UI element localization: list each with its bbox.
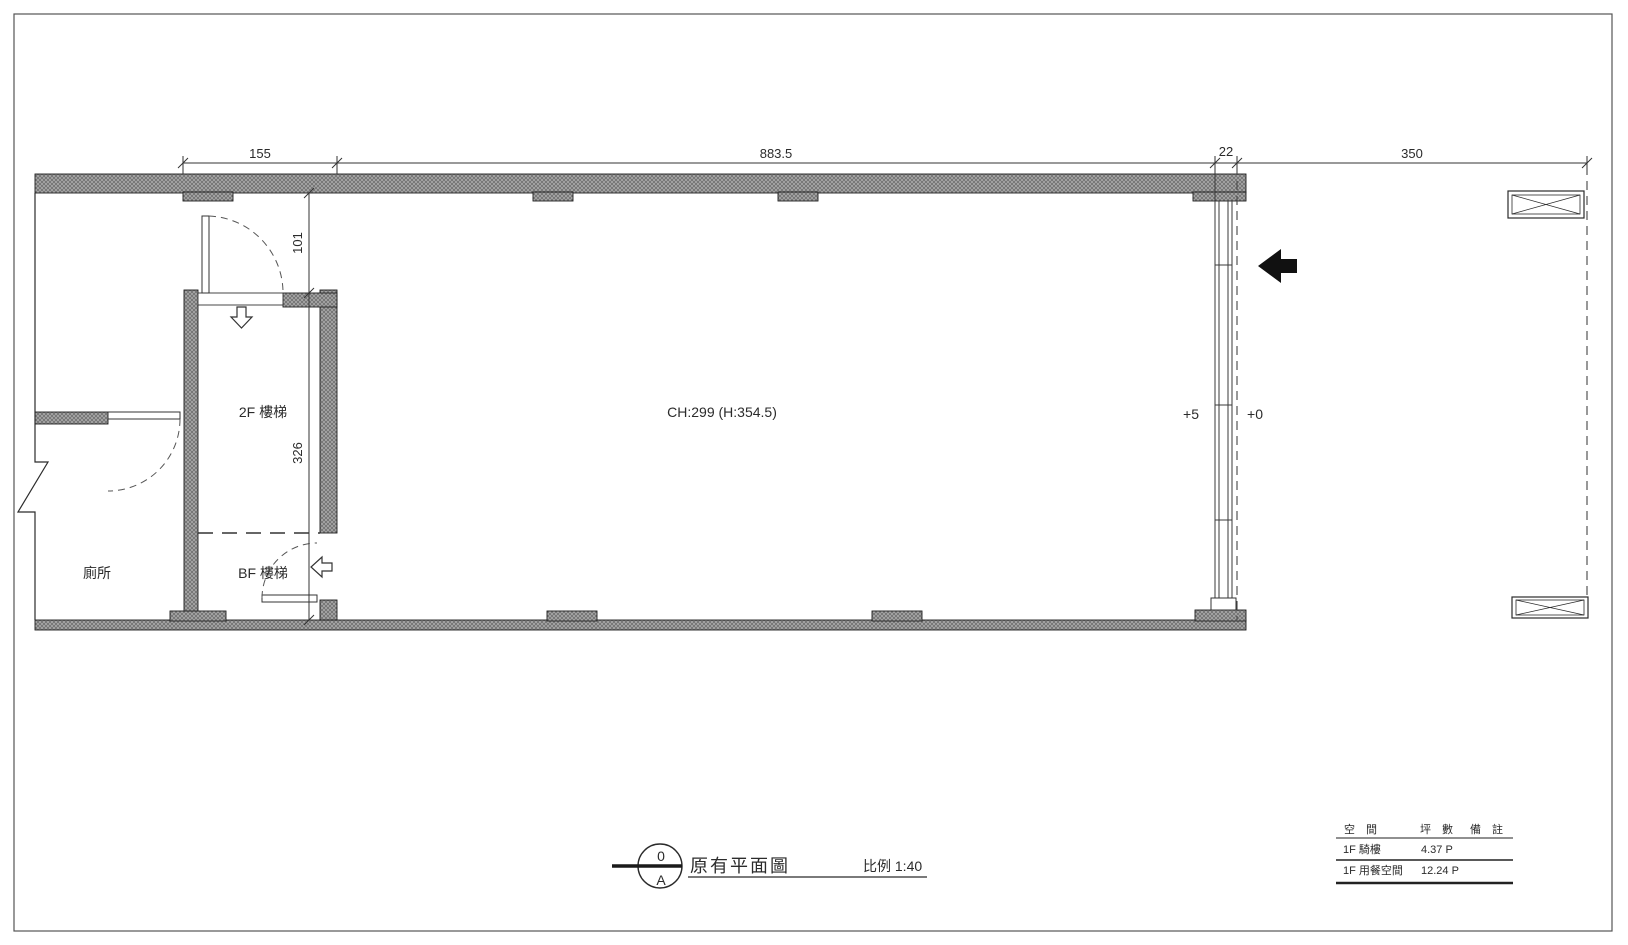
title-bubble-letter: A: [656, 872, 666, 888]
stair-dimension-chain: [304, 188, 314, 625]
table-row-space: 1F 騎樓: [1343, 842, 1381, 856]
dim-101-label: 101: [290, 232, 305, 254]
drawing-title: 原有平面圖: [690, 856, 790, 876]
stair-down-arrow-icon: [231, 307, 252, 328]
arcade-column-bottom: [1512, 597, 1588, 618]
left-wall-break: [18, 193, 48, 620]
door-swing-arc: [209, 216, 283, 291]
table-row-space: 1F 用餐空間: [1343, 863, 1403, 877]
arcade-column-top: [1508, 191, 1584, 218]
area-table: 空 間 坪 數 備 註 1F 騎樓 4.37 P 1F 用餐空間 12.24 P: [1336, 822, 1513, 883]
table-header-area: 坪 數: [1420, 823, 1457, 836]
table-header-space: 空 間: [1344, 822, 1381, 836]
dim-155-label: 155: [249, 146, 271, 161]
drawing-sheet: 155 883.5 22 350 101 326 2F 樓梯 BF 樓梯 廁所 …: [0, 0, 1628, 945]
door-sill: [198, 293, 283, 305]
entry-arrow-icon: [1258, 249, 1297, 283]
table-header-note: 備 註: [1470, 823, 1507, 836]
floor-plan-svg: 155 883.5 22 350 101 326 2F 樓梯 BF 樓梯 廁所 …: [0, 0, 1628, 945]
door-swing-arc: [108, 419, 180, 491]
label-stair-2f: 2F 樓梯: [239, 404, 287, 420]
dim-22-label: 22: [1219, 144, 1233, 159]
stair-bf-arrow-icon: [311, 557, 332, 577]
dim-326-label: 326: [290, 442, 305, 464]
table-row-area: 12.24 P: [1421, 865, 1459, 877]
label-level-plus5: +5: [1183, 406, 1199, 422]
door-toilet: [108, 412, 180, 491]
door-leaf: [202, 216, 209, 293]
door-2f-stair: [198, 216, 283, 305]
dim-350-label: 350: [1401, 146, 1423, 161]
drawing-scale: 比例 1:40: [863, 858, 922, 874]
dim-883-label: 883.5: [760, 146, 793, 161]
label-toilet: 廁所: [83, 565, 111, 581]
title-block: 0 A 原有平面圖 比例 1:40: [612, 844, 927, 888]
exterior-walls: [35, 174, 1246, 630]
label-level-plus0: +0: [1247, 406, 1263, 422]
title-bubble-number: 0: [657, 848, 665, 864]
table-row-area: 4.37 P: [1421, 844, 1453, 856]
storefront-glazing: [1211, 201, 1236, 610]
door-leaf: [108, 412, 180, 419]
label-ceiling-height: CH:299 (H:354.5): [667, 404, 777, 420]
label-stair-bf: BF 樓梯: [238, 565, 288, 581]
